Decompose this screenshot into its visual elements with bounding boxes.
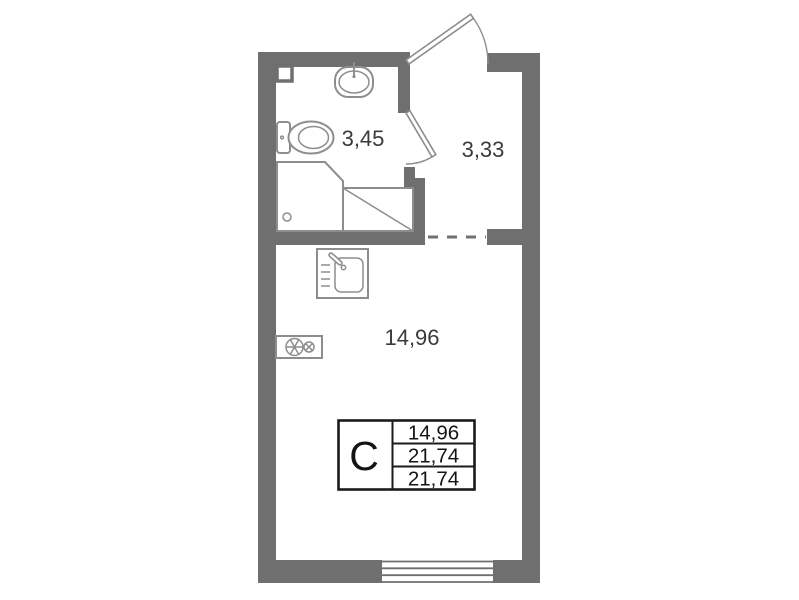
wall-bottom-left xyxy=(258,560,382,583)
bathroom-bottom-wall xyxy=(258,231,425,245)
area-value-overall: 21,74 xyxy=(408,468,459,491)
entrance-door-leaf xyxy=(406,14,473,64)
floor-plan: 3,45 3,33 14,96 С 14,96 21,74 21,74 xyxy=(0,0,799,600)
window xyxy=(382,559,493,583)
entrance-door-arc xyxy=(474,18,489,64)
hallway-area-label: 3,33 xyxy=(462,137,505,162)
main-room-area-label: 14,96 xyxy=(384,325,439,350)
bathroom-door-arc xyxy=(406,157,432,164)
hall-wall-stub xyxy=(487,229,522,245)
wall-bottom-right xyxy=(493,560,540,583)
bathroom-wall-upper xyxy=(398,62,410,113)
entrance-door xyxy=(406,14,488,64)
hatched-area xyxy=(343,188,413,231)
area-table: С 14,96 21,74 21,74 xyxy=(339,421,475,491)
kitchen-sink-icon xyxy=(317,249,368,298)
shower-icon xyxy=(277,162,343,231)
toilet-icon xyxy=(277,122,334,154)
bathroom-area-label: 3,45 xyxy=(342,126,385,151)
bathroom-door xyxy=(406,111,436,164)
vent-shaft xyxy=(277,66,292,81)
unit-type-letter: С xyxy=(349,433,379,479)
sink-tap-dot xyxy=(352,75,355,78)
bathroom-door-leaf xyxy=(406,111,436,157)
area-value-total: 21,74 xyxy=(408,445,459,468)
wall-left xyxy=(258,52,276,583)
wall-right xyxy=(522,53,540,583)
stove-icon xyxy=(276,336,322,358)
bathroom-sink-icon xyxy=(335,62,373,97)
window-glass xyxy=(382,559,493,583)
area-value-living: 14,96 xyxy=(408,422,459,445)
